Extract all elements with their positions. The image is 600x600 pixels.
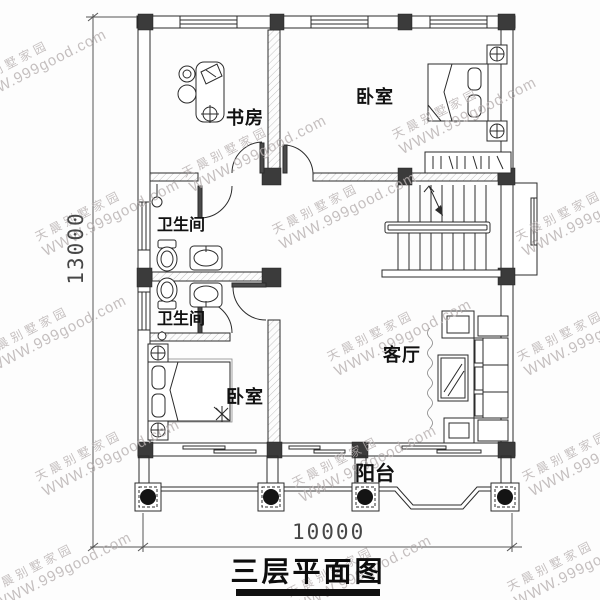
plan-title: 三层平面图 xyxy=(228,550,388,590)
window-top-3 xyxy=(430,16,487,28)
study-furniture xyxy=(178,62,224,123)
dimension-width: 10000 xyxy=(292,520,365,544)
chair xyxy=(178,85,196,103)
room-label-bathroom-lower: 卫生间 xyxy=(157,305,205,329)
room-label-bedroom-top: 卧室 xyxy=(356,83,394,109)
balcony-railing xyxy=(161,487,491,509)
room-label-living: 客厅 xyxy=(383,341,421,367)
light-fixture xyxy=(158,332,166,340)
pillow xyxy=(468,95,481,117)
room-label-bedroom-bottom: 卧室 xyxy=(226,383,264,409)
wardrobe xyxy=(425,152,511,173)
room-label-bathroom-upper: 卫生间 xyxy=(157,211,205,235)
floor-plan-drawing xyxy=(0,0,600,600)
floor-plan-canvas: 天晨别墅家园WWW.999good.com天晨别墅家园WWW.999good.c… xyxy=(0,0,600,600)
rug-edge xyxy=(428,328,433,428)
side-table xyxy=(478,316,508,336)
pillow xyxy=(152,366,165,389)
stair-landing xyxy=(513,183,537,275)
light-fixture xyxy=(152,197,162,207)
dimension-depth: 13000 xyxy=(64,203,88,293)
stair-floor-edge xyxy=(382,270,501,277)
title-underline xyxy=(236,589,380,596)
window-stair xyxy=(531,198,537,245)
window-top-1 xyxy=(180,16,237,28)
window-left-1 xyxy=(138,202,150,250)
pillow xyxy=(152,394,165,417)
window-left-2 xyxy=(138,292,150,330)
side-table xyxy=(478,420,508,441)
door-study xyxy=(232,142,264,173)
pillow xyxy=(468,68,481,90)
bedroom-bottom-furniture xyxy=(148,344,232,440)
bedroom-top-furniture xyxy=(428,45,507,141)
living-room-furniture xyxy=(428,311,509,443)
door-bedroom-top xyxy=(283,145,313,173)
door-bedroom-bottom xyxy=(232,283,266,320)
stair-direction-arrow xyxy=(424,186,443,216)
window-top-2 xyxy=(311,16,368,28)
room-label-study: 书房 xyxy=(226,104,264,130)
room-label-balcony: 阳台 xyxy=(355,457,395,486)
stair-handrail xyxy=(385,222,490,233)
